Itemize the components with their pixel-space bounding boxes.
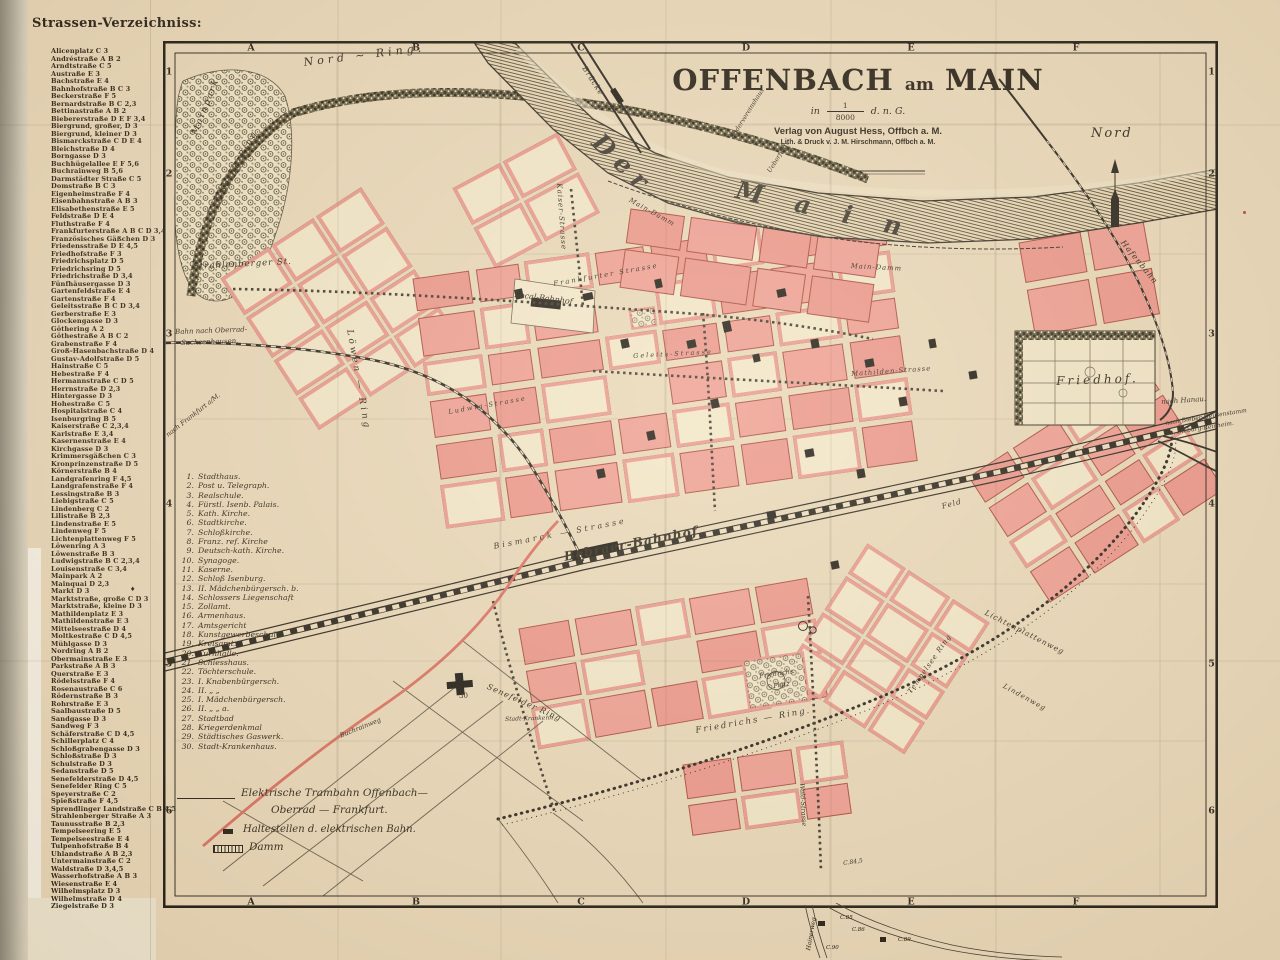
grid-row-left-2: 2 <box>166 169 173 180</box>
title-am: am <box>905 75 934 95</box>
legend-item: 30.Stadt-Krankenhaus. <box>179 742 299 751</box>
damm-symbol <box>213 845 243 853</box>
legend-item-label: Fürstl. Isenb. Palais. <box>198 500 279 509</box>
grid-col-top-C: C <box>577 42 585 53</box>
numbered-legend: 1.Stadthaus.2.Post u. Telegraph.3.Realsc… <box>179 472 299 751</box>
legend-item-number: 3. <box>179 491 194 500</box>
publisher-line: Verlag von August Hess, Offbch a. M. <box>668 126 1048 137</box>
legend-item-number: 1. <box>179 472 194 481</box>
grid-col-bottom-C: C <box>577 896 585 907</box>
grid-col-top-F: F <box>1073 42 1080 53</box>
legend-item-label: Stadtkirche. <box>198 518 247 527</box>
legend-item-label: Töchterschule. <box>198 667 256 676</box>
legend-item: 16.Armenhaus. <box>179 611 299 620</box>
label-wald: Wald-Strasse <box>799 783 808 826</box>
legend-item-number: 19. <box>179 639 194 648</box>
legend-item-number: 14. <box>179 593 194 602</box>
legend-item: 19.Kreisamt. <box>179 639 299 648</box>
legend-item-number: 7. <box>179 528 194 537</box>
label-c89: C.89 <box>898 938 911 944</box>
legend-item-label: Städtisches Gaswerk. <box>198 732 283 741</box>
grid-col-top-E: E <box>907 42 914 53</box>
legend-item-number: 11. <box>179 565 194 574</box>
grid-row-left-6: 6 <box>166 806 173 817</box>
legend-item: 2.Post u. Telegraph. <box>179 481 299 490</box>
tram-legend-line1: Elektrische Trambahn Offenbach— <box>241 787 428 799</box>
bottom-margin-roads <box>690 903 1090 960</box>
adjacent-page-edge <box>0 0 28 960</box>
compass-label: Nord <box>1091 127 1133 140</box>
legend-item: 12.Schloß Isenburg. <box>179 574 299 583</box>
label-c90: C.90 <box>826 946 839 952</box>
legend-item-number: 26. <box>179 704 194 713</box>
label-kh-nr: 30 <box>459 693 468 700</box>
scale-denominator: 8000 <box>827 112 864 121</box>
legend-item: 24.II. „ „ <box>179 686 299 695</box>
index-pointer-mark: ♦ <box>130 586 135 593</box>
legend-item-label: Schloß Isenburg. <box>198 574 266 583</box>
legend-item-label: Kriegerdenkmal <box>198 723 262 732</box>
legend-item-number: 23. <box>179 677 194 686</box>
damm-label: Damm <box>249 841 284 853</box>
legend-item: 28.Kriegerdenkmal <box>179 723 299 732</box>
grid-row-right-1: 1 <box>1208 67 1215 78</box>
label-c86: C.86 <box>852 928 865 934</box>
legend-item: 23.I. Knabenbürgersch. <box>179 677 299 686</box>
legend-item: 9.Deutsch-kath. Kirche. <box>179 546 299 555</box>
city-map: OFFENBACH am MAIN in 1 8000 d. n. G. Ver… <box>163 41 1218 908</box>
label-friedhof: Friedhof. <box>1056 372 1139 387</box>
map-title-block: OFFENBACH am MAIN in 1 8000 d. n. G. Ver… <box>668 65 1048 146</box>
grid-col-bottom-A: A <box>247 896 254 907</box>
legend-item-label: Kaserne. <box>198 565 233 574</box>
street-index-heading: Strassen-Verzeichniss: <box>32 16 202 31</box>
street-index-list: Alicenplatz C 3Andréstraße A B 2Arndtstr… <box>51 48 176 911</box>
map-title: OFFENBACH am MAIN <box>668 65 1048 95</box>
grid-row-right-2: 2 <box>1208 169 1215 180</box>
legend-item-label: Synagoge. <box>198 556 239 565</box>
scanned-city-map-page: { "page": { "heading": "Strassen-Verzeic… <box>0 0 1280 960</box>
grid-row-right-4: 4 <box>1208 499 1215 510</box>
scale-prefix: in <box>811 106 820 117</box>
legend-item: 22.Töchterschule. <box>179 667 299 676</box>
legend-item-number: 9. <box>179 546 194 555</box>
legend-item: 25.I. Mädchenbürgersch. <box>179 695 299 704</box>
legend-item-label: II. „ „ a. <box>198 704 229 713</box>
fold-crease <box>0 124 1280 126</box>
legend-item-number: 15. <box>179 602 194 611</box>
legend-item: 1.Stadthaus. <box>179 472 299 481</box>
legend-item-number: 30. <box>179 742 194 751</box>
grid-col-top-A: A <box>247 42 254 53</box>
legend-item: 10.Synagoge. <box>179 556 299 565</box>
legend-item: 20.Turnhalle. <box>179 649 299 658</box>
grid-row-left-4: 4 <box>166 499 173 510</box>
legend-item-label: Schloßkirche. <box>198 528 253 537</box>
legend-item: 17.Amtsgericht <box>179 621 299 630</box>
legend-item: 27.Stadtbad <box>179 714 299 723</box>
legend-item-number: 8. <box>179 537 194 546</box>
tram-stop-symbol <box>223 829 233 834</box>
legend-item: 6.Stadtkirche. <box>179 518 299 527</box>
fold-crease <box>830 0 832 960</box>
legend-item-number: 17. <box>179 621 194 630</box>
legend-item-label: Stadtbad <box>198 714 234 723</box>
legend-item-label: Kath. Kirche. <box>198 509 250 518</box>
legend-item-label: Kreisamt. <box>198 639 236 648</box>
legend-item-label: Deutsch-kath. Kirche. <box>198 546 284 555</box>
legend-item-number: 10. <box>179 556 194 565</box>
legend-item-label: Franz. ref. Kirche <box>198 537 268 546</box>
scale-fraction: 1 8000 <box>827 102 864 121</box>
legend-item-label: Armenhaus. <box>198 611 246 620</box>
legend-item: 18.Kunstgewerbeschule. <box>179 630 299 639</box>
legend-item-label: Zollamt. <box>198 602 231 611</box>
ink-spot <box>1243 211 1246 214</box>
legend-item-label: Schlossers Liegenschaft <box>198 593 294 602</box>
legend-item: 4.Fürstl. Isenb. Palais. <box>179 500 299 509</box>
label-c85: C.85 <box>840 916 853 922</box>
legend-item-label: Stadt-Krankenhaus. <box>198 742 277 751</box>
scale-suffix: d. n. G. <box>871 106 906 117</box>
grid-row-left-1: 1 <box>166 67 173 78</box>
legend-item-number: 16. <box>179 611 194 620</box>
title-offenbach: OFFENBACH <box>672 63 894 97</box>
legend-item-number: 2. <box>179 481 194 490</box>
legend-item-label: Stadthaus. <box>198 472 240 481</box>
legend-item: 15.Zollamt. <box>179 602 299 611</box>
legend-item-number: 13. <box>179 584 194 593</box>
legend-item: 8.Franz. ref. Kirche <box>179 537 299 546</box>
legend-item-number: 22. <box>179 667 194 676</box>
legend-item: 13.II. Mädchenbürgersch. b. <box>179 584 299 593</box>
legend-item: 3.Realschule. <box>179 491 299 500</box>
map-scale: in 1 8000 d. n. G. <box>668 102 1048 121</box>
legend-item-number: 28. <box>179 723 194 732</box>
legend-item-number: 4. <box>179 500 194 509</box>
scale-numerator: 1 <box>827 102 864 112</box>
legend-item-number: 29. <box>179 732 194 741</box>
tram-stops-label: Haltestellen d. elektrischen Bahn. <box>243 824 416 835</box>
legend-item: 5.Kath. Kirche. <box>179 509 299 518</box>
printer-line: Lith. & Druck v. J. M. Hirschmann, Offbc… <box>668 139 1048 146</box>
fold-crease <box>337 0 339 960</box>
fold-crease <box>665 0 667 960</box>
legend-item-label: Kunstgewerbeschule. <box>198 630 283 639</box>
fold-crease <box>500 0 502 960</box>
legend-item-number: 18. <box>179 630 194 639</box>
legend-item-label: I. Knabenbürgersch. <box>198 677 279 686</box>
map-drawing <box>163 41 1218 908</box>
legend-item-number: 5. <box>179 509 194 518</box>
grid-row-right-3: 3 <box>1208 329 1215 340</box>
legend-item-number: 20. <box>179 649 194 658</box>
legend-item: 26.II. „ „ a. <box>179 704 299 713</box>
block-grid <box>453 133 599 268</box>
fold-crease <box>995 0 997 960</box>
legend-item-label: II. Mädchenbürgersch. b. <box>198 584 299 593</box>
grid-row-right-6: 6 <box>1208 806 1215 817</box>
street-index-entry: Ziegelstraße D 3 <box>51 903 176 911</box>
grid-row-left-3: 3 <box>166 329 173 340</box>
block-grid <box>683 741 853 837</box>
grid-col-bottom-B: B <box>412 896 420 907</box>
fold-crease <box>0 660 1280 662</box>
tram-line-symbol <box>177 798 235 799</box>
tram-legend-line2: Oberrad — Frankfurt. <box>271 804 388 816</box>
legend-item-label: Amtsgericht <box>198 621 247 630</box>
legend-item-number: 6. <box>179 518 194 527</box>
legend-item: 14.Schlossers Liegenschaft <box>179 593 299 602</box>
legend-item: 29.Städtisches Gaswerk. <box>179 732 299 741</box>
legend-item: 11.Kaserne. <box>179 565 299 574</box>
legend-item-label: Post u. Telegraph. <box>198 481 269 490</box>
grid-col-top-D: D <box>742 42 750 53</box>
legend-item-label: I. Mädchenbürgersch. <box>198 695 286 704</box>
legend-item-label: Realschule. <box>198 491 244 500</box>
legend-item-number: 25. <box>179 695 194 704</box>
legend-item-label: II. „ „ <box>198 686 220 695</box>
legend-item-number: 12. <box>179 574 194 583</box>
legend-item-label: Turnhalle. <box>198 649 239 658</box>
legend-item-number: 27. <box>179 714 194 723</box>
legend-item: 7.Schloßkirche. <box>179 528 299 537</box>
legend-item-number: 24. <box>179 686 194 695</box>
